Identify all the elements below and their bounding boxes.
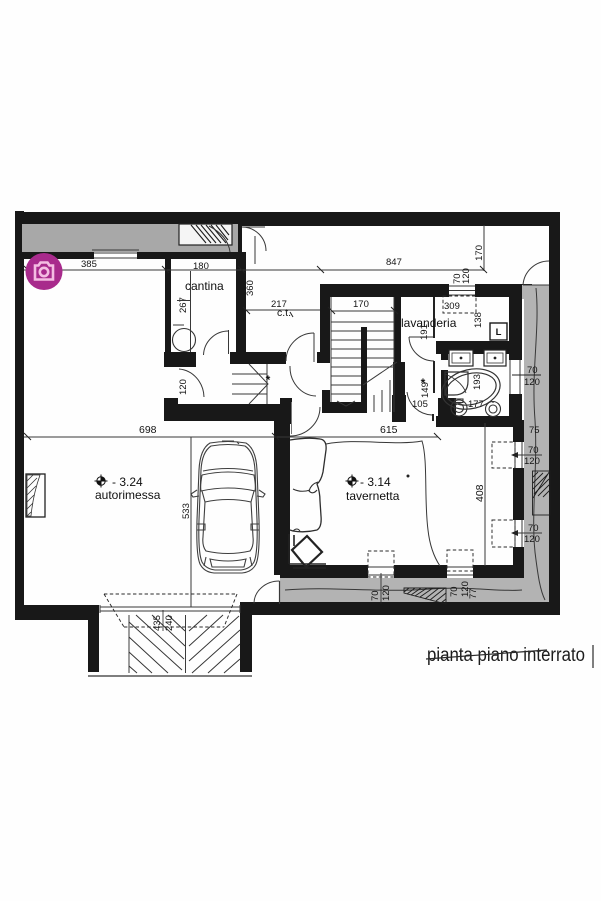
svg-text:120: 120 (524, 534, 540, 545)
svg-text:698: 698 (139, 424, 157, 436)
svg-text:120: 120 (524, 456, 540, 467)
svg-text:70: 70 (528, 523, 539, 534)
svg-text:267: 267 (178, 297, 189, 313)
svg-text:120: 120 (178, 379, 189, 395)
svg-text:70: 70 (370, 590, 381, 601)
svg-text:170: 170 (474, 245, 485, 261)
svg-text:360: 360 (245, 280, 256, 296)
svg-text:847: 847 (386, 257, 402, 268)
svg-text:217: 217 (271, 299, 287, 310)
svg-text:385: 385 (81, 259, 97, 270)
svg-text:70: 70 (527, 365, 538, 376)
svg-text:- 3.14: - 3.14 (360, 475, 391, 489)
svg-text:149: 149 (420, 382, 431, 398)
svg-text:180: 180 (193, 261, 209, 272)
svg-text:170: 170 (353, 299, 369, 310)
svg-text:70: 70 (449, 586, 460, 597)
svg-text:105: 105 (412, 399, 428, 410)
svg-text:533: 533 (181, 503, 192, 519)
svg-text:177: 177 (468, 399, 484, 410)
svg-text:L: L (496, 327, 502, 338)
svg-text:408: 408 (474, 484, 486, 502)
svg-text:77: 77 (468, 588, 479, 599)
svg-text:193: 193 (472, 374, 483, 390)
svg-text:autorimessa: autorimessa (95, 488, 161, 502)
svg-text:- 3.24: - 3.24 (112, 475, 143, 489)
svg-text:240: 240 (164, 615, 175, 631)
svg-text:pianta piano interrato: pianta piano interrato (427, 645, 585, 666)
svg-text:*: * (266, 373, 271, 387)
svg-text:120: 120 (524, 377, 540, 388)
svg-text:75: 75 (529, 425, 540, 436)
svg-text:tavernetta: tavernetta (346, 489, 400, 503)
svg-text:70: 70 (528, 445, 539, 456)
svg-text:138: 138 (473, 312, 484, 328)
svg-text:309: 309 (444, 301, 460, 312)
svg-text:120: 120 (461, 268, 472, 284)
svg-text:615: 615 (380, 424, 398, 436)
svg-text:120: 120 (381, 585, 392, 601)
svg-text:435: 435 (152, 615, 163, 631)
svg-text:191: 191 (419, 324, 430, 340)
